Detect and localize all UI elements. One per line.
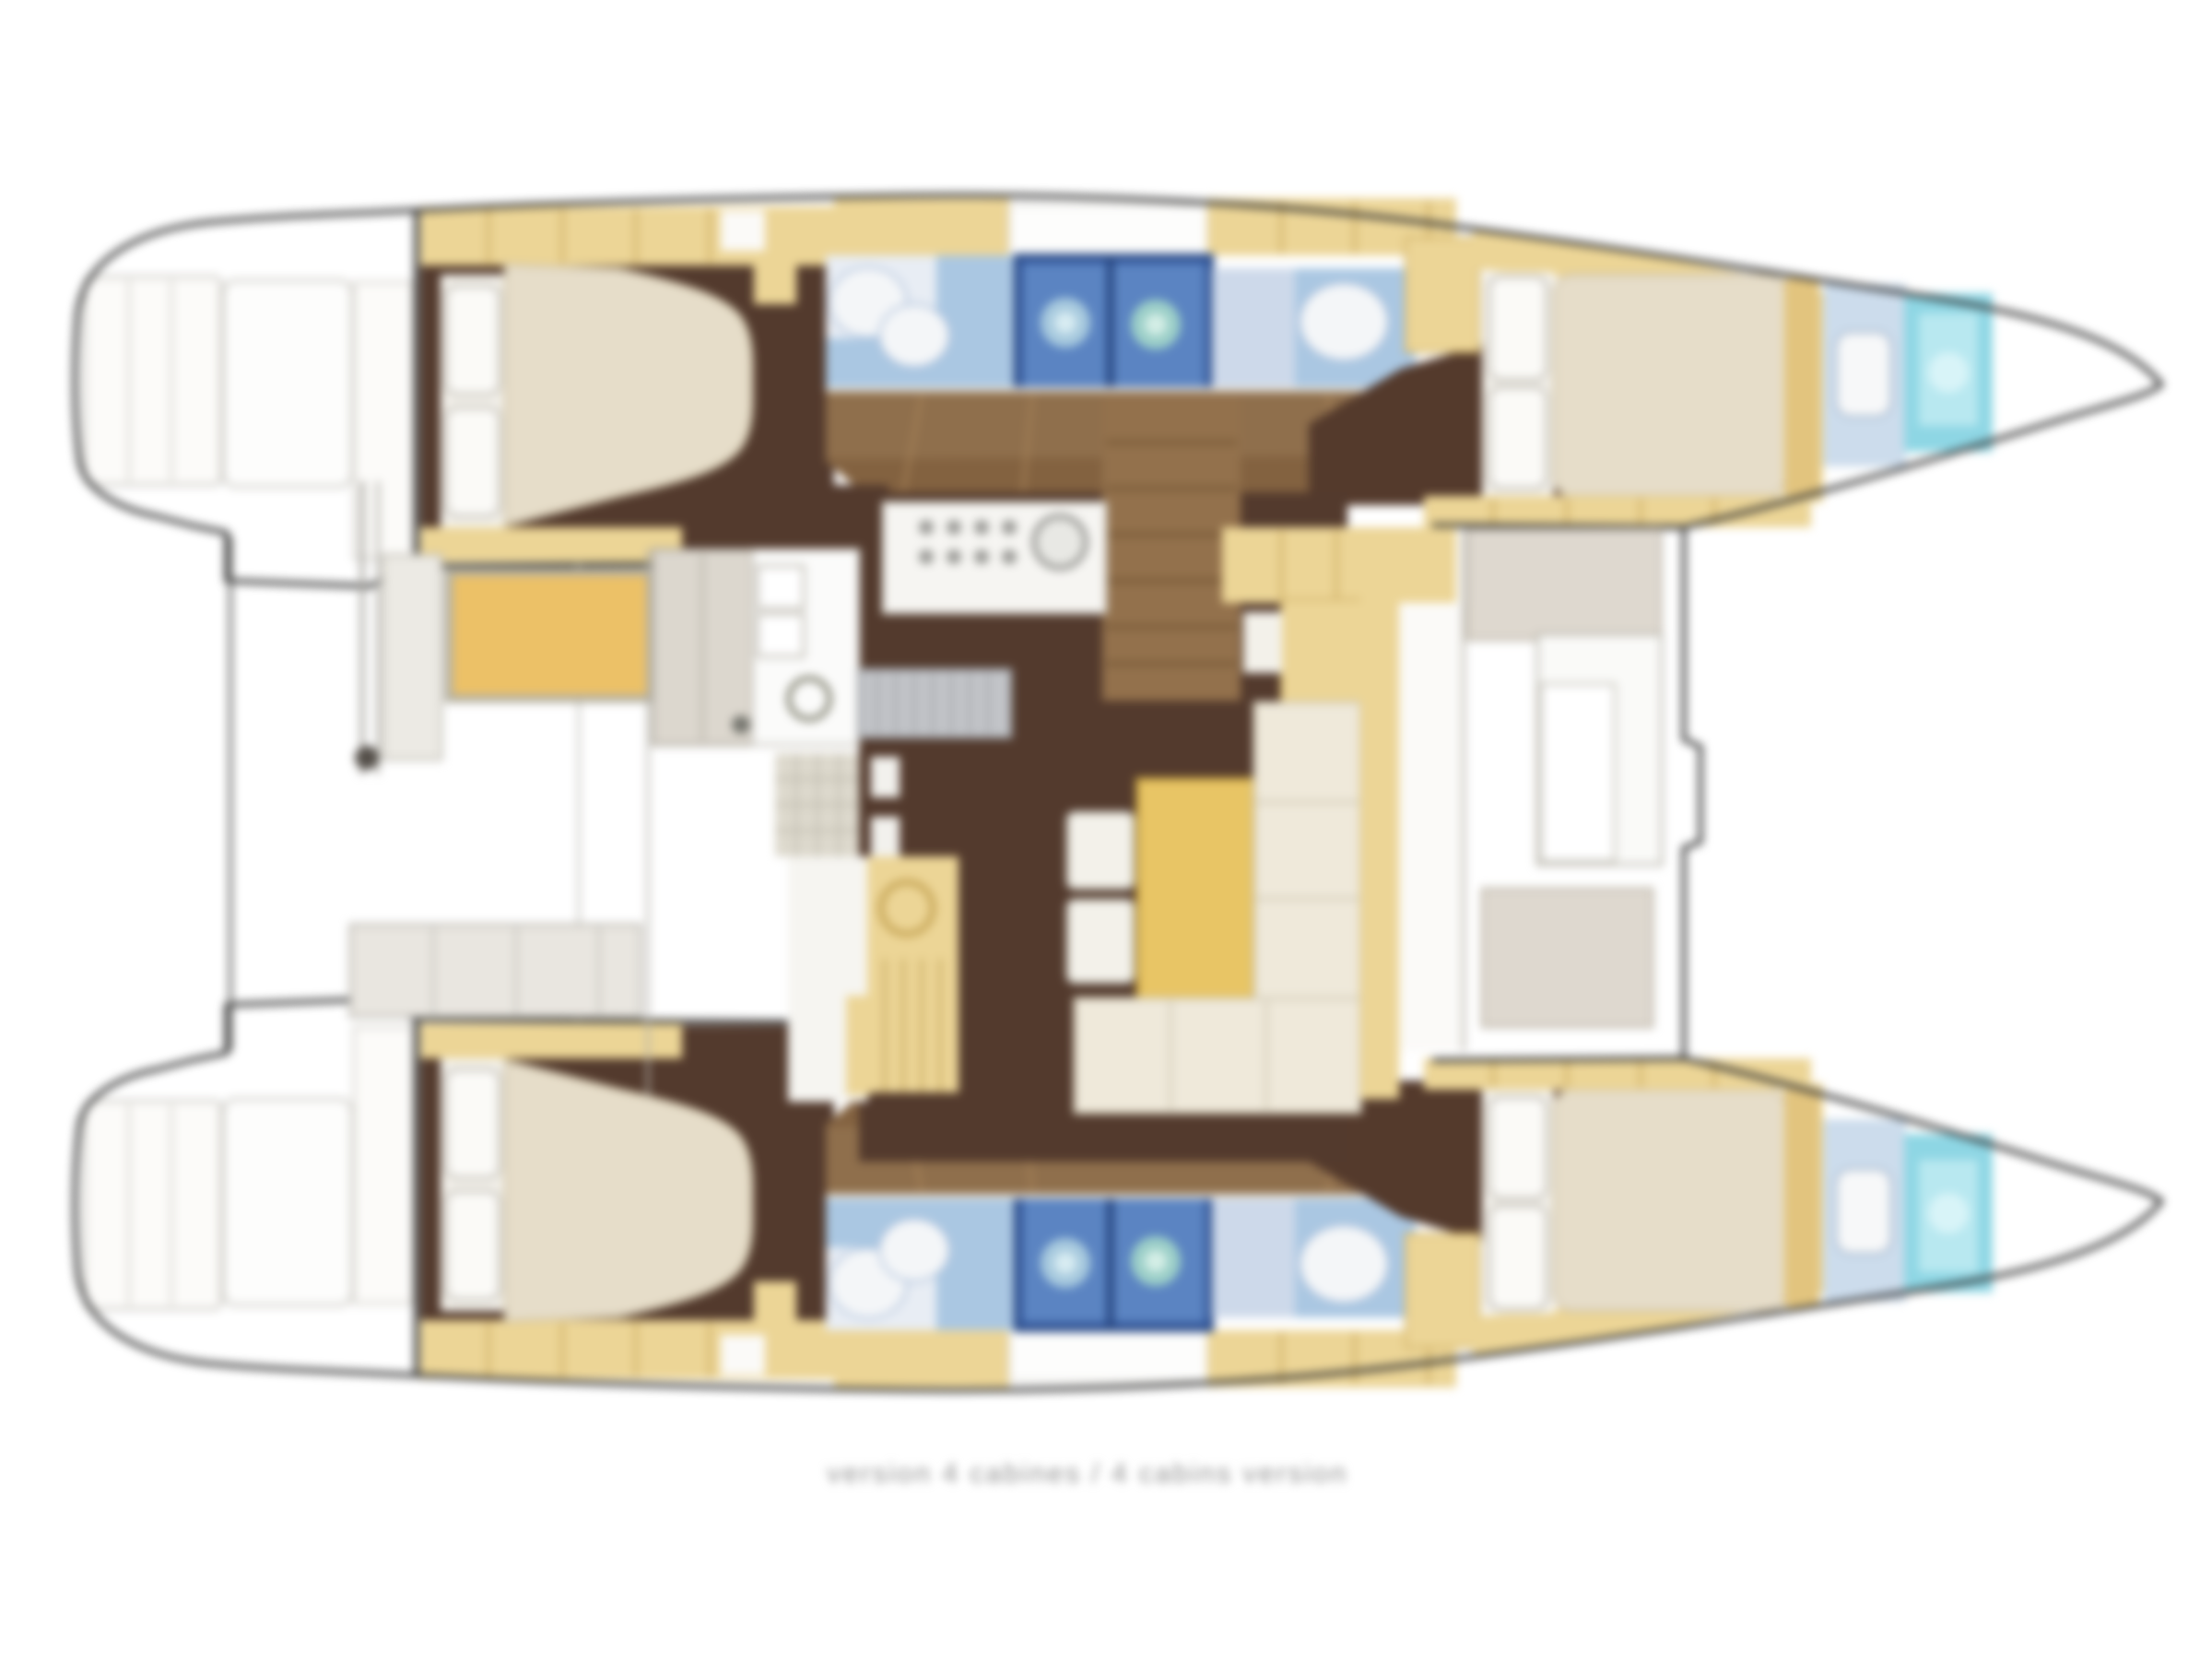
svg-text:version 4 cabines / 4 cabins v: version 4 cabines / 4 cabins version xyxy=(827,1458,1347,1489)
